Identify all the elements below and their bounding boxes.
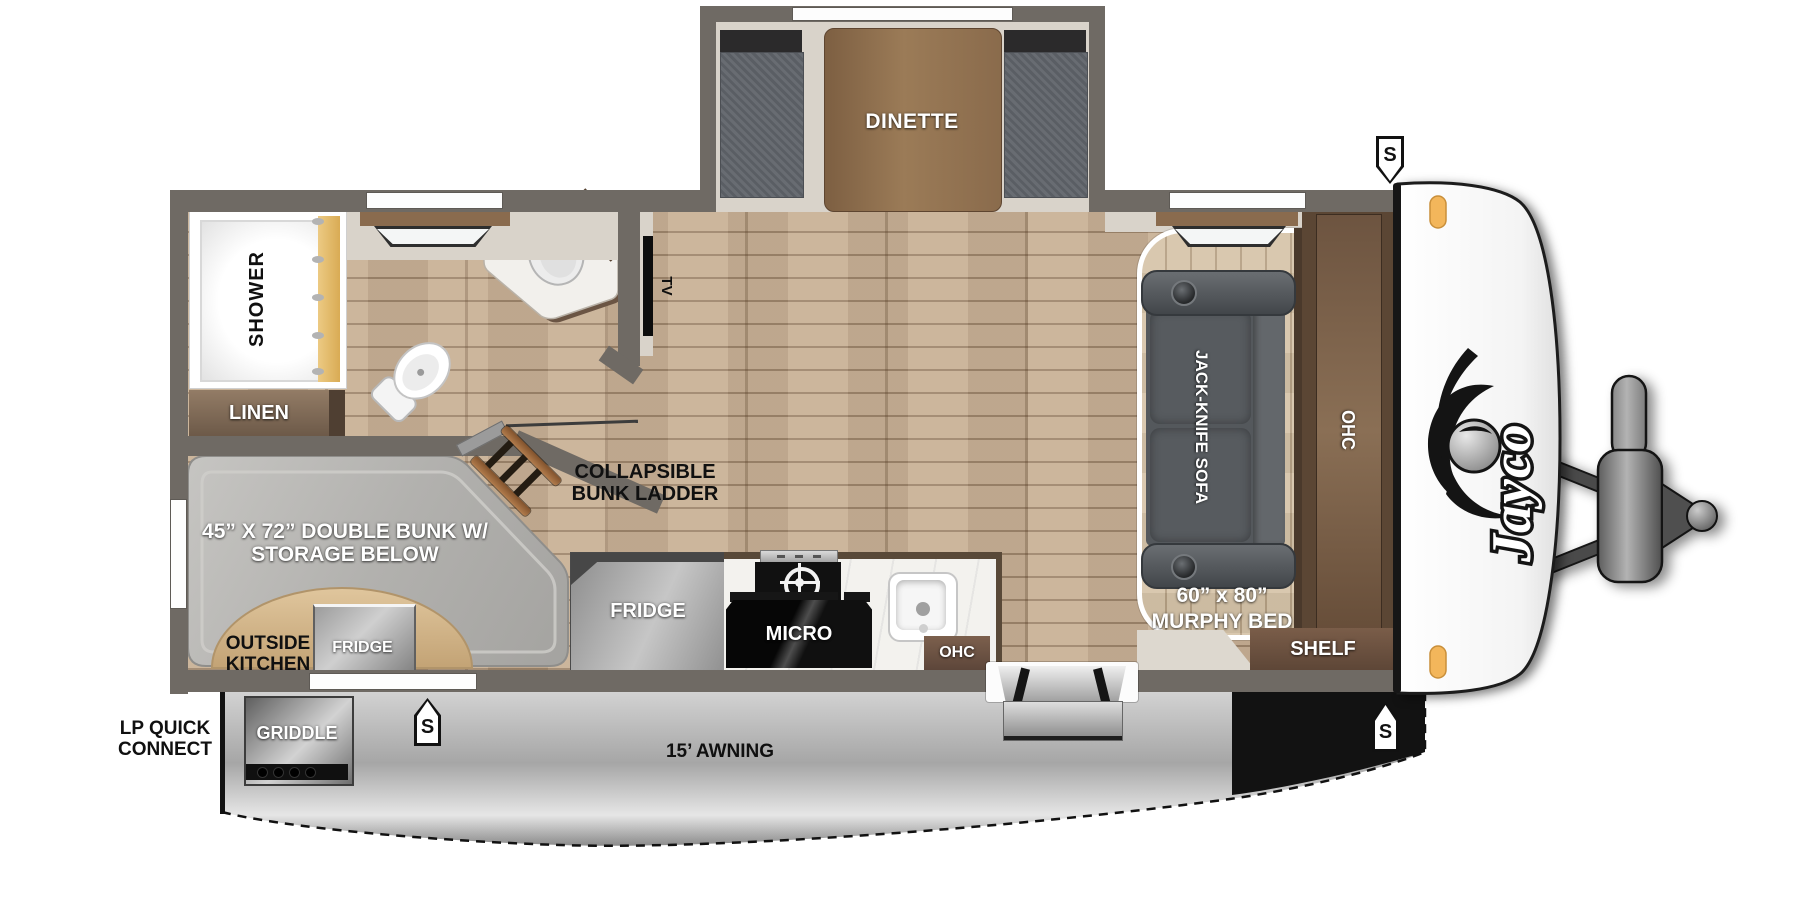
cap-wall-seam — [1393, 183, 1401, 693]
jayco-logo-text: Jayco — [1481, 423, 1543, 563]
floorplan-canvas: 15’ AWNING GRIDDLE LP QUICKCONNECT — [0, 0, 1800, 920]
front-cap-and-hitch: Jayco — [0, 0, 1800, 920]
propane-cover — [1598, 450, 1662, 582]
hitch-ball — [1687, 501, 1717, 531]
tongue-jack — [1612, 376, 1646, 460]
marker-light-top — [1430, 196, 1446, 228]
marker-light-bottom — [1430, 646, 1446, 678]
